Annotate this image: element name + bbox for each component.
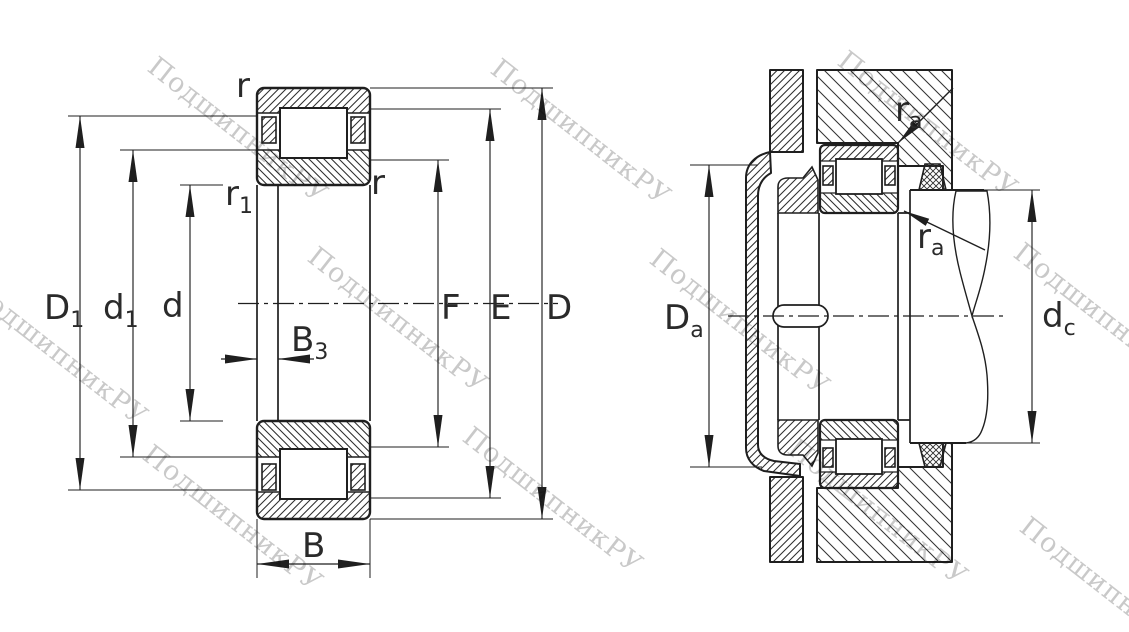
watermark-text: ПодшипникРУ: [485, 53, 677, 212]
label-F: F: [441, 288, 461, 328]
cage-section: [351, 117, 365, 143]
arrow-icon: [434, 160, 443, 192]
arrow-icon: [76, 116, 85, 148]
label-E: E: [490, 288, 511, 328]
bearing-section-bottom: [257, 421, 370, 519]
label-d: d: [162, 286, 184, 326]
watermark-text: ПодшипникРУ: [457, 421, 649, 580]
drawing-canvas: D1 d1 d B3 B F E D r r1 r: [0, 0, 1129, 632]
abutment-sleeve-top: [778, 167, 818, 213]
label-r-top: r: [236, 66, 250, 106]
bearing-dimension-drawing: D1 d1 d B3 B F E D r r1 r: [0, 0, 1129, 632]
roller: [280, 108, 347, 158]
arrow-icon: [76, 458, 85, 490]
arrow-icon: [338, 560, 370, 569]
seal-section-bottom: [919, 443, 946, 467]
arrow-icon: [1028, 411, 1037, 443]
inner-ring-section: [820, 420, 898, 440]
cover-section-bottom: [770, 477, 803, 562]
label-ra-bottom: ra: [917, 217, 944, 261]
arrow-icon: [129, 150, 138, 182]
label-B3: B3: [291, 320, 328, 365]
roller: [280, 449, 347, 499]
arrow-icon: [434, 415, 443, 447]
watermark-layer: ПодшипникРУ ПодшипникРУ ПодшипникРУ Подш…: [0, 45, 1129, 632]
arrow-icon: [486, 109, 495, 141]
cage-section: [262, 464, 276, 490]
cage-section: [351, 464, 365, 490]
watermark-text: ПодшипникРУ: [1014, 511, 1129, 632]
seal-section-top: [919, 164, 946, 190]
label-r1: r1: [225, 174, 253, 219]
arrow-icon: [1028, 190, 1037, 222]
shaft-break-line: [966, 316, 988, 443]
cage-section: [885, 166, 895, 185]
roller: [836, 159, 882, 194]
cage-section: [885, 448, 895, 467]
shaft-break-section: [953, 191, 990, 316]
watermark-text: ПодшипникРУ: [302, 241, 494, 400]
arrow-icon: [186, 389, 195, 421]
inner-ring-section: [820, 193, 898, 213]
cover-section-top: [770, 70, 803, 152]
label-r-right: r: [371, 163, 385, 203]
label-D: D: [546, 288, 572, 328]
arrow-icon: [186, 185, 195, 217]
watermark-text: ПодшипникРУ: [0, 273, 153, 432]
arrow-icon: [705, 435, 714, 467]
arrow-icon: [225, 355, 257, 364]
arrow-icon: [705, 165, 714, 197]
bearing-section-top: [820, 145, 898, 213]
left-view: D1 d1 d B3 B F E D r r1 r: [44, 66, 572, 578]
cage-section: [823, 166, 833, 185]
